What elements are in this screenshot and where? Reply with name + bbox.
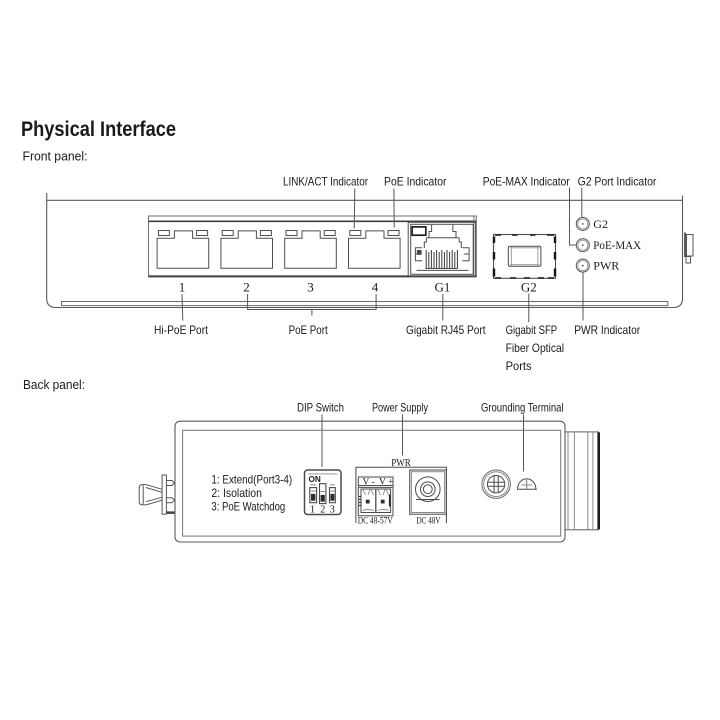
svg-text:DC 48V: DC 48V bbox=[417, 515, 441, 525]
svg-text:PoE Indicator: PoE Indicator bbox=[384, 175, 447, 189]
svg-text:2: 2 bbox=[320, 504, 325, 515]
svg-text:PWR: PWR bbox=[391, 458, 411, 469]
svg-text:PoE-MAX Indicator: PoE-MAX Indicator bbox=[483, 175, 570, 189]
svg-text:1: Extend(Port3-4): 1: Extend(Port3-4) bbox=[211, 473, 292, 487]
svg-text:DC 48-57V: DC 48-57V bbox=[358, 515, 393, 525]
svg-text:DIP Switch: DIP Switch bbox=[297, 401, 344, 415]
svg-text:Grounding Terminal: Grounding Terminal bbox=[481, 401, 564, 415]
svg-text:G2: G2 bbox=[521, 280, 537, 295]
svg-text:Fiber Optical: Fiber Optical bbox=[506, 341, 564, 355]
svg-text:G1: G1 bbox=[435, 280, 451, 295]
svg-text:3: PoE Watchdog: 3: PoE Watchdog bbox=[211, 499, 285, 513]
svg-text:Physical Interface: Physical Interface bbox=[21, 118, 176, 141]
svg-text:1: 1 bbox=[310, 504, 315, 515]
svg-text:G2: G2 bbox=[593, 217, 608, 231]
svg-text:2: 2 bbox=[243, 280, 250, 295]
svg-text:Front panel:: Front panel: bbox=[23, 150, 88, 164]
svg-text:3: 3 bbox=[307, 280, 314, 295]
svg-text:ON: ON bbox=[309, 475, 321, 484]
svg-text:Gigabit RJ45 Port: Gigabit RJ45 Port bbox=[406, 323, 486, 337]
svg-text:4: 4 bbox=[372, 280, 379, 295]
svg-text:1: 1 bbox=[179, 280, 186, 295]
svg-text:PoE-MAX: PoE-MAX bbox=[593, 238, 641, 252]
svg-text:3: 3 bbox=[330, 504, 335, 515]
svg-text:Ports: Ports bbox=[506, 359, 532, 373]
svg-text:PWR Indicator: PWR Indicator bbox=[574, 323, 640, 337]
svg-text:Back panel:: Back panel: bbox=[23, 378, 85, 392]
svg-text:PWR: PWR bbox=[593, 259, 619, 273]
svg-text:PoE Port: PoE Port bbox=[289, 323, 329, 337]
svg-text:G2 Port Indicator: G2 Port Indicator bbox=[578, 175, 657, 189]
svg-text:2: Isolation: 2: Isolation bbox=[211, 486, 262, 500]
svg-text:Gigabit SFP: Gigabit SFP bbox=[506, 323, 558, 337]
svg-text:Hi-PoE Port: Hi-PoE Port bbox=[154, 323, 209, 337]
svg-text:LINK/ACT Indicator: LINK/ACT Indicator bbox=[283, 175, 368, 189]
svg-text:Power Supply: Power Supply bbox=[372, 401, 428, 415]
